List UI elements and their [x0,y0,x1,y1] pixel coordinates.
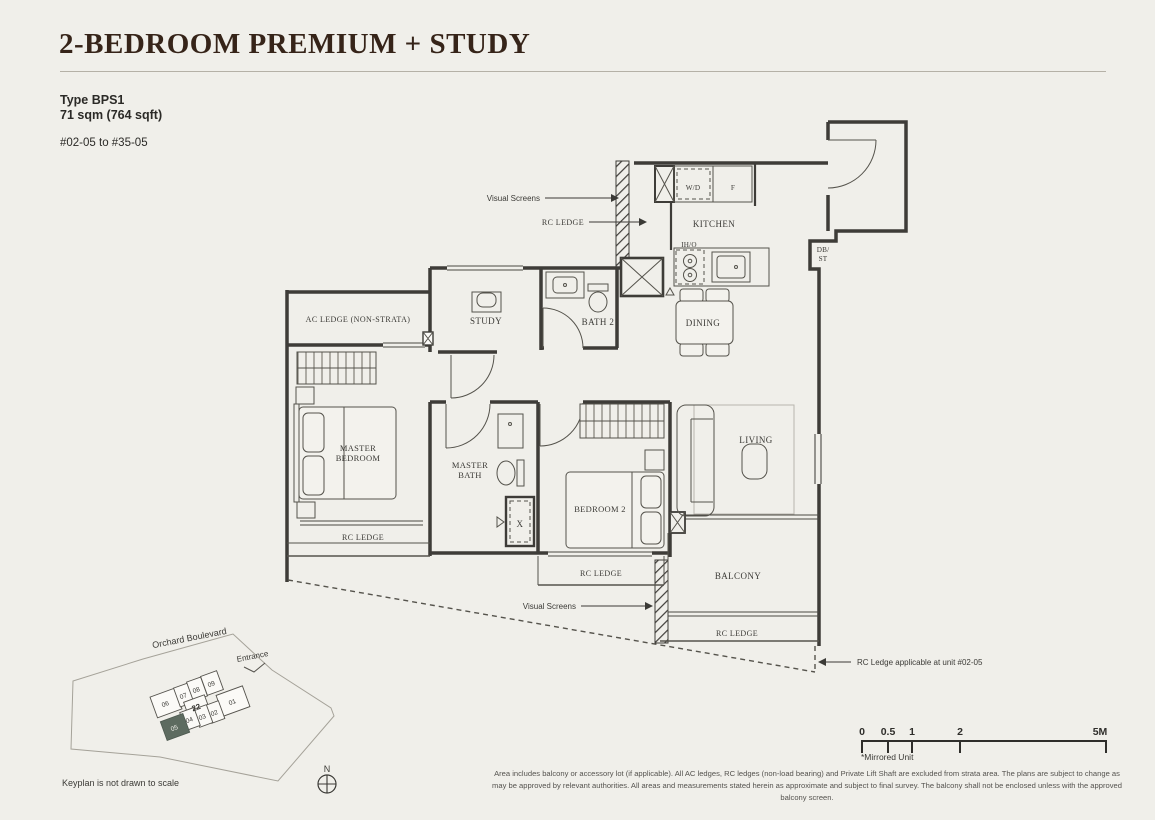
strata-dashed-lines [288,580,851,672]
label-kitchen: KITCHEN [693,219,735,229]
label-dining: DINING [686,318,720,328]
living-furniture [677,405,794,516]
label-rc-ledge-master: RC LEDGE [342,533,384,542]
label-visual-screens-top: Visual Screens [487,194,540,203]
label-master-1: MASTER [340,443,376,453]
mirrored-unit-note: *Mirrored Unit [861,752,913,762]
disclaimer-text: Area includes balcony or accessory lot (… [492,768,1122,803]
label-mbath-2: BATH [458,470,481,480]
sofa [677,405,714,516]
label-visual-screens-bottom: Visual Screens [523,602,576,611]
bath2-vanity [546,272,584,298]
label-rc-ledge-balcony: RC LEDGE [716,629,758,638]
entrance-marker [244,663,265,672]
master-bedroom-furniture [294,352,396,518]
bath2-toilet [589,292,607,312]
study-furniture [472,292,501,312]
label-rc-ledge-bed2: RC LEDGE [580,569,622,578]
label-living: LIVING [739,435,772,445]
coffee-table [742,444,767,479]
label-st: ST [819,255,828,263]
visual-screen-wall-top [616,161,629,267]
shaft-x-mark: X [517,519,524,529]
label-db: DB/ [817,246,830,254]
floorplan-drawing: X [0,0,1155,820]
label-master-2: BEDROOM [336,453,381,463]
master-bath-sink [498,414,523,448]
north-compass: N [318,764,336,793]
bedroom2-furniture [566,404,664,548]
label-balcony: BALCONY [715,571,761,581]
door-swings [446,308,583,448]
bath2-fixtures [546,272,608,312]
master-bath-toilet [497,461,515,485]
label-iho: IH/O [681,241,697,249]
scale-tick-2: 2 [957,726,963,738]
master-bath-fixtures [497,414,524,486]
scale-tick-05: 0.5 [881,726,896,738]
label-entrance: Entrance [236,649,270,664]
scale-bar: 0 0.5 1 2 5M [859,726,1107,753]
label-bath2: BATH 2 [582,317,615,327]
exterior-walls [287,122,906,646]
label-rc-ledge-arrow: RC LEDGE [542,218,584,227]
study-desk [472,292,501,312]
label-bedroom2: BEDROOM 2 [574,504,626,514]
label-fridge: F [731,184,735,192]
keyplan: Orchard Boulevard Entrance 06 07 08 09 2… [71,626,336,793]
label-mbath-1: MASTER [452,460,488,470]
keyplan-note: Keyplan is not drawn to scale [62,778,179,788]
label-rc-note: RC Ledge applicable at unit #02-05 [857,658,983,667]
label-wd: W/D [686,184,701,192]
floorplan-page: 2-BEDROOM PREMIUM + STUDY Type BPS1 71 s… [0,0,1155,820]
scale-tick-0: 0 [859,726,865,738]
visual-screen-wall-bottom [655,560,668,643]
living-window [815,434,821,484]
scale-tick-5m: 5M [1093,726,1108,738]
scale-tick-1: 1 [909,726,915,738]
label-ac-ledge: AC LEDGE (NON-STRATA) [306,315,411,324]
label-north: N [324,764,331,774]
label-study: STUDY [470,316,502,326]
